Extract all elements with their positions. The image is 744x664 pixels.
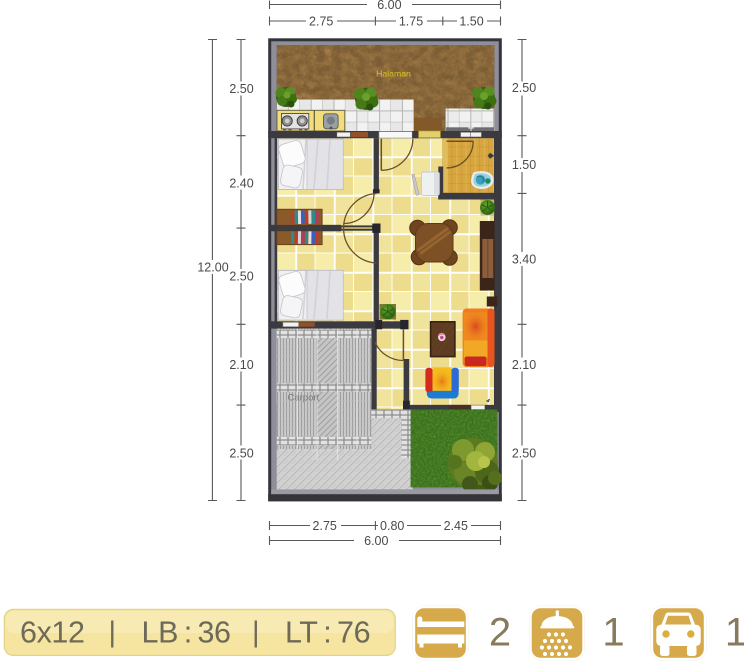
- svg-text:2.45: 2.45: [444, 519, 468, 533]
- svg-text:1.50: 1.50: [512, 158, 536, 172]
- svg-text:2.50: 2.50: [512, 446, 536, 460]
- svg-text:6x12: 6x12: [20, 616, 85, 650]
- svg-text:LB : 36: LB : 36: [142, 616, 231, 650]
- svg-text:0.80: 0.80: [380, 519, 404, 533]
- svg-text:|: |: [109, 617, 116, 649]
- svg-text:2.10: 2.10: [512, 358, 536, 372]
- svg-text:|: |: [252, 617, 259, 649]
- svg-text:2.50: 2.50: [512, 81, 536, 95]
- svg-text:Carport: Carport: [288, 393, 320, 404]
- svg-text:1: 1: [602, 611, 624, 655]
- svg-text:2: 2: [489, 611, 511, 655]
- svg-text:2.50: 2.50: [229, 82, 253, 96]
- svg-text:2.50: 2.50: [229, 270, 253, 284]
- svg-text:2.50: 2.50: [229, 446, 253, 460]
- svg-text:6.00: 6.00: [364, 534, 388, 548]
- svg-text:Halaman: Halaman: [376, 69, 411, 79]
- svg-text:1: 1: [725, 611, 744, 655]
- svg-text:1.50: 1.50: [459, 15, 483, 29]
- svg-text:LT : 76: LT : 76: [285, 616, 370, 650]
- svg-text:12.00: 12.00: [197, 261, 228, 275]
- svg-text:3.40: 3.40: [512, 252, 536, 266]
- svg-text:6.00: 6.00: [377, 0, 401, 12]
- svg-text:2.75: 2.75: [309, 15, 333, 29]
- svg-text:2.10: 2.10: [229, 358, 253, 372]
- svg-text:2.75: 2.75: [313, 519, 337, 533]
- svg-text:2.40: 2.40: [229, 176, 253, 190]
- svg-text:1.75: 1.75: [399, 15, 423, 29]
